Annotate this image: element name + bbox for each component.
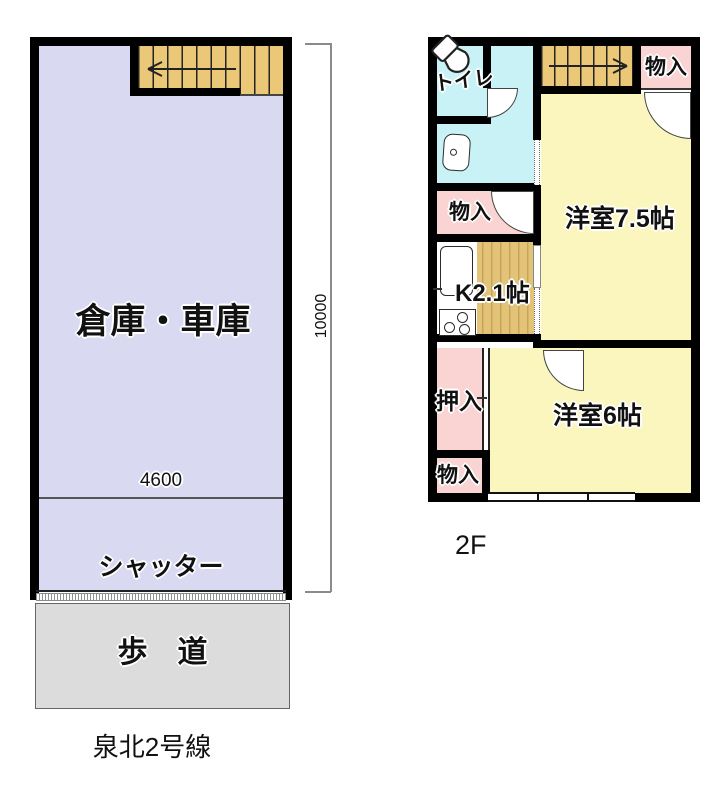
road-label: 泉北2号線: [52, 733, 252, 762]
garage-inner-line: [39, 497, 283, 499]
oshiire-label: 押入: [436, 389, 482, 414]
stair-bottom-wall: [130, 88, 240, 96]
corridor-right-wall-a: [533, 94, 541, 140]
stairs-direction-arrow-left: [140, 58, 240, 80]
oshiire-bottom-wall: [428, 450, 490, 458]
unit2-right-wall: [691, 37, 700, 502]
dim-tick-top: [305, 43, 331, 45]
kitchen-tap-tick: [433, 288, 442, 290]
western-room-6-label: 洋室6帖: [553, 403, 642, 431]
corridor-right-wall-b: [533, 185, 541, 245]
stairs-direction-arrow-right: [545, 56, 633, 76]
stair-bottom-edge: [240, 94, 283, 96]
garage-left-wall: [30, 37, 39, 600]
western-room-75-label: 洋室7.5帖: [565, 206, 675, 234]
window-tick: [587, 494, 589, 500]
window-bottom: [488, 492, 635, 502]
washroom-bottom-wall: [428, 183, 534, 191]
storage-bottom-label: 物入: [437, 464, 479, 487]
sink-icon: [442, 133, 472, 172]
shutter-label: シャッター: [39, 554, 283, 582]
kitchen-opening: [534, 288, 540, 334]
stove-icon: [439, 309, 476, 336]
sidewalk-label: 歩 道: [35, 636, 290, 669]
storage-mid-label: 物入: [449, 201, 491, 224]
stair2-bottom-wall: [533, 86, 641, 94]
floor-label-2f: 2F: [455, 531, 487, 561]
storage-bottom-right-wall: [482, 458, 490, 493]
stove-burner: [459, 324, 470, 335]
garage-room-label: 倉庫・車庫: [40, 303, 286, 342]
stair2-right-wall: [633, 46, 641, 94]
toilet-bottom-wall: [437, 116, 491, 124]
garage-height-dim: 10000: [313, 294, 331, 339]
storage-mid-bottom-wall: [428, 234, 534, 242]
dim-tick-bottom: [305, 591, 331, 593]
oshiire-sliding-door: [482, 348, 490, 450]
garage-width-dim: 4600: [39, 471, 283, 492]
shutter-line: [36, 590, 286, 592]
kitchen-wall-panel: [533, 245, 541, 288]
floorplan-canvas: 4600 倉庫・車庫 シャッター 歩 道 泉北2号線 10000: [0, 0, 721, 800]
shutter-strip: [36, 593, 286, 601]
kitchen-label: K2.1帖: [455, 281, 530, 307]
stove-burner: [444, 322, 455, 333]
storage-top-label: 物入: [645, 56, 687, 79]
unit2-left-wall: [428, 37, 437, 502]
window-tick: [537, 494, 539, 500]
garage-top-wall: [30, 37, 292, 46]
room-divider-wall: [533, 340, 700, 348]
washroom-opening: [534, 140, 540, 185]
stove-burner: [457, 312, 468, 323]
